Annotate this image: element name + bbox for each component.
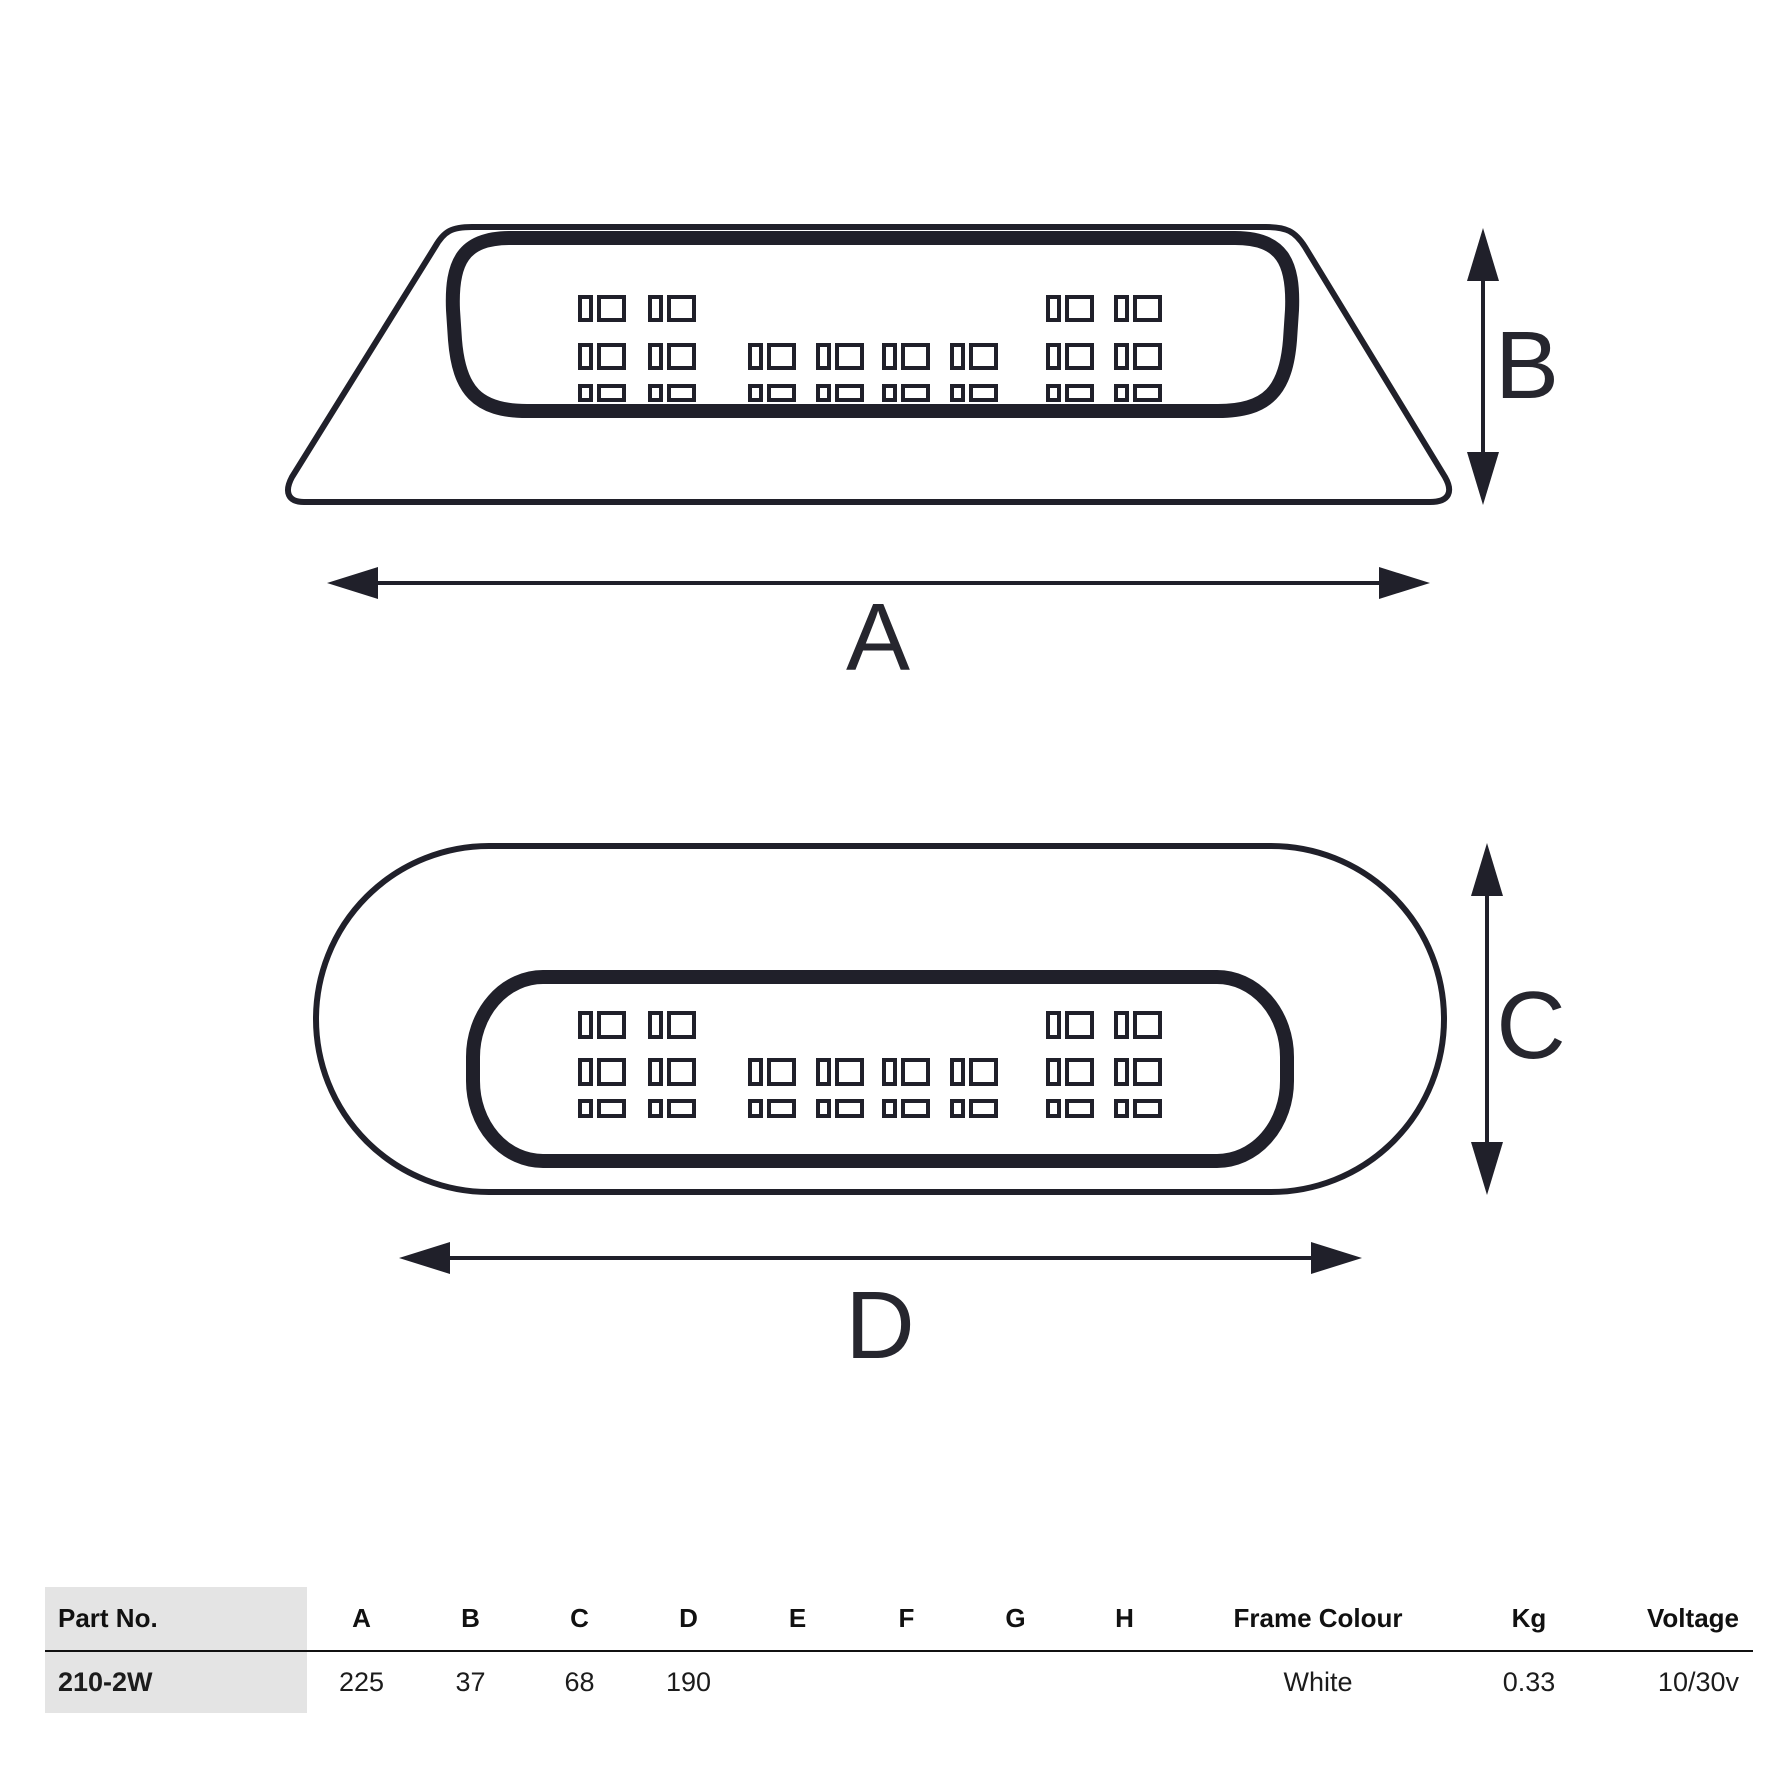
dim-b-arrowhead-top bbox=[1467, 228, 1499, 281]
col-header-b: B bbox=[416, 1587, 525, 1651]
col-header-h: H bbox=[1070, 1587, 1179, 1651]
dim-label-a: A bbox=[846, 584, 910, 691]
top-view-lens bbox=[473, 977, 1287, 1161]
dim-c-arrowhead-bottom bbox=[1471, 1142, 1503, 1195]
col-header-d: D bbox=[634, 1587, 743, 1651]
page: A B C D bbox=[0, 0, 1778, 1778]
top-view bbox=[316, 846, 1444, 1192]
cell-d: 190 bbox=[634, 1651, 743, 1713]
cell-g bbox=[961, 1651, 1070, 1713]
dim-label-d: D bbox=[845, 1272, 914, 1379]
col-header-a: A bbox=[307, 1587, 416, 1651]
dim-b-arrowhead-bottom bbox=[1467, 452, 1499, 505]
cell-frame-colour: White bbox=[1179, 1651, 1457, 1713]
dim-a-arrowhead-right bbox=[1379, 567, 1430, 599]
cell-part-no: 210-2W bbox=[45, 1651, 307, 1713]
technical-drawing: A B C D bbox=[0, 0, 1778, 1778]
col-header-frame-colour: Frame Colour bbox=[1179, 1587, 1457, 1651]
cell-voltage: 10/30v bbox=[1601, 1651, 1753, 1713]
col-header-g: G bbox=[961, 1587, 1070, 1651]
col-header-voltage: Voltage bbox=[1601, 1587, 1753, 1651]
dim-label-b: B bbox=[1495, 312, 1559, 419]
cell-h bbox=[1070, 1651, 1179, 1713]
spec-table: Part No. A B C D E F G H Frame Colour Kg… bbox=[45, 1587, 1753, 1713]
col-header-c: C bbox=[525, 1587, 634, 1651]
cell-c: 68 bbox=[525, 1651, 634, 1713]
col-header-e: E bbox=[743, 1587, 852, 1651]
dim-a-arrowhead-left bbox=[327, 567, 378, 599]
dim-d-arrowhead-right bbox=[1311, 1242, 1362, 1274]
spec-table-header-row: Part No. A B C D E F G H Frame Colour Kg… bbox=[45, 1587, 1753, 1651]
dim-d-arrowhead-left bbox=[399, 1242, 450, 1274]
dimension-d: D bbox=[399, 1242, 1362, 1379]
dim-label-c: C bbox=[1496, 972, 1565, 1079]
cell-kg: 0.33 bbox=[1457, 1651, 1601, 1713]
cell-b: 37 bbox=[416, 1651, 525, 1713]
side-view bbox=[288, 227, 1449, 502]
cell-f bbox=[852, 1651, 961, 1713]
col-header-f: F bbox=[852, 1587, 961, 1651]
cell-a: 225 bbox=[307, 1651, 416, 1713]
cell-e bbox=[743, 1651, 852, 1713]
dimension-a: A bbox=[327, 567, 1430, 691]
dimension-c: C bbox=[1471, 843, 1566, 1195]
col-header-part-no: Part No. bbox=[45, 1587, 307, 1651]
col-header-kg: Kg bbox=[1457, 1587, 1601, 1651]
dim-c-arrowhead-top bbox=[1471, 843, 1503, 896]
dimension-b: B bbox=[1467, 228, 1559, 505]
spec-table-row: 210-2W 225 37 68 190 White 0.33 10/30v bbox=[45, 1651, 1753, 1713]
